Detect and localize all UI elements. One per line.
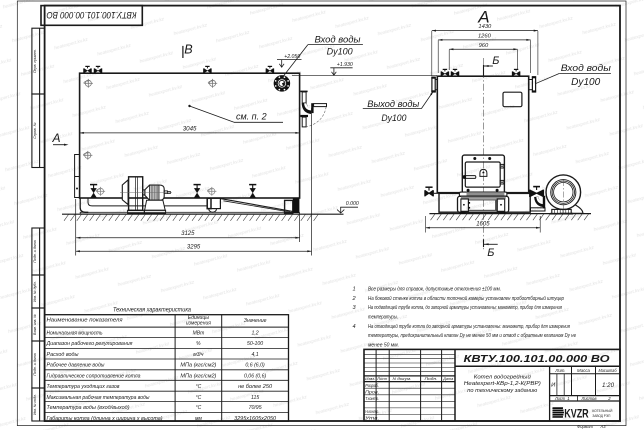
- svg-text:115: 115: [251, 395, 259, 401]
- svg-text:На боковой стенке котла в обла: На боковой стенке котла в области топочн…: [368, 295, 564, 302]
- svg-text:Температура воды (вход/выход): Температура воды (вход/выход): [47, 405, 130, 411]
- svg-text:1605: 1605: [476, 221, 490, 227]
- svg-text:0,6 (6,0): 0,6 (6,0): [245, 363, 265, 369]
- svg-text:по техническому заданию: по техническому заданию: [467, 388, 537, 394]
- svg-text:Подп. и дата: Подп. и дата: [33, 240, 37, 263]
- svg-text:Вход воды: Вход воды: [561, 63, 611, 73]
- svg-text:0,06 (0,6): 0,06 (0,6): [244, 373, 266, 379]
- svg-text:1:20: 1:20: [602, 382, 615, 389]
- svg-text:%: %: [196, 341, 201, 347]
- svg-text:1: 1: [353, 287, 356, 293]
- svg-text:3295: 3295: [187, 245, 201, 251]
- svg-text:Значение: Значение: [244, 318, 267, 324]
- svg-text:Формат: Формат: [577, 424, 593, 429]
- svg-text:Heatexpert-КВр-1,2-К(РВР): Heatexpert-КВр-1,2-К(РВР): [464, 381, 541, 387]
- svg-text:Гидравлическое сопротивление к: Гидравлическое сопротивление котла: [47, 373, 141, 379]
- svg-text:1260: 1260: [478, 34, 492, 40]
- svg-text:°С: °С: [196, 384, 202, 390]
- svg-text:менее 50 мм.: менее 50 мм.: [368, 342, 399, 348]
- svg-text:50-100: 50-100: [247, 341, 263, 347]
- svg-text:960: 960: [479, 43, 489, 49]
- svg-text:Масштаб: Масштаб: [599, 368, 617, 373]
- svg-text:N докум.: N докум.: [393, 376, 412, 381]
- svg-text:Изм.: Изм.: [365, 377, 375, 381]
- svg-text:Температура уходящих газов: Температура уходящих газов: [47, 384, 120, 390]
- svg-text:КОТЕЛЬНЫЙ: КОТЕЛЬНЫЙ: [592, 409, 612, 413]
- svg-text:Наименование показателя: Наименование показателя: [47, 317, 123, 323]
- svg-text:Подп.: Подп.: [425, 376, 438, 381]
- svg-text:4: 4: [353, 324, 356, 330]
- svg-text:3045: 3045: [183, 126, 197, 133]
- svg-text:Т.контр.: Т.контр.: [365, 396, 379, 401]
- svg-text:температуры.: температуры.: [368, 315, 398, 321]
- svg-text:4,1: 4,1: [251, 352, 258, 358]
- svg-text:см. п. 2: см. п. 2: [236, 112, 267, 122]
- svg-text:А: А: [477, 7, 489, 26]
- svg-text:А: А: [52, 131, 61, 145]
- svg-text:Габариты котла (длинна х ширин: Габариты котла (длинна х ширина х высота…: [47, 416, 163, 422]
- svg-text:Вход воды: Вход воды: [315, 35, 361, 45]
- svg-text:Котел водогрейный: Котел водогрейный: [474, 373, 531, 380]
- svg-text:Все размеры для справок, допус: Все размеры для справок, допустимые откл…: [368, 287, 501, 293]
- svg-text:Дата: Дата: [442, 376, 454, 381]
- svg-text:МВт: МВт: [193, 331, 205, 337]
- svg-text:Б: Б: [492, 55, 499, 67]
- svg-text:Перв. примен.: Перв. примен.: [33, 49, 37, 73]
- svg-text:Выход воды: Выход воды: [367, 99, 419, 109]
- svg-text:измерения: измерения: [186, 321, 211, 327]
- svg-text:Подп. и дата: Подп. и дата: [33, 353, 37, 376]
- svg-text:3295х1605х2050: 3295х1605х2050: [234, 416, 276, 422]
- svg-text:°С: °С: [196, 405, 202, 411]
- svg-text:KVZR: KVZR: [564, 406, 589, 420]
- svg-text:Рабочее давление воды: Рабочее давление воды: [47, 363, 105, 369]
- svg-text:МПа (кгс/см2): МПа (кгс/см2): [180, 373, 216, 379]
- svg-text:температуры, предохранительный: температуры, предохранительный клапан Dу…: [368, 332, 576, 339]
- svg-text:На отводящей трубе котла до за: На отводящей трубе котла до запорной арм…: [368, 323, 570, 330]
- svg-text:Взам. инв. №: Взам. инв. №: [33, 314, 37, 335]
- svg-text:Лист: Лист: [376, 377, 387, 381]
- svg-text:не более 250: не более 250: [238, 384, 272, 390]
- svg-text:КВТУ.100.101.00.000 ВО: КВТУ.100.101.00.000 ВО: [46, 10, 137, 21]
- svg-text:ЗАВОД РЭП: ЗАВОД РЭП: [592, 414, 610, 418]
- svg-text:Справ. №: Справ. №: [33, 122, 37, 138]
- svg-text:Б: Б: [487, 247, 494, 259]
- svg-text:+1.930: +1.930: [337, 62, 353, 68]
- svg-text:3125: 3125: [181, 231, 195, 237]
- svg-text:А3: А3: [600, 424, 607, 429]
- svg-text:1,2: 1,2: [251, 331, 258, 337]
- svg-text:+2.050: +2.050: [284, 54, 300, 60]
- svg-text:Пров.: Пров.: [365, 389, 379, 394]
- svg-text:Dy100: Dy100: [327, 47, 353, 57]
- svg-text:0.000: 0.000: [346, 201, 359, 207]
- svg-text:Лит.: Лит.: [554, 368, 565, 373]
- svg-text:Максимальная рабочая температу: Максимальная рабочая температура воды: [47, 395, 150, 401]
- svg-text:КВТУ.100.101.00.000 ВО: КВТУ.100.101.00.000 ВО: [464, 354, 610, 365]
- svg-text:На подводящей трубе котла, д: На подводящей трубе котла, до запорной а…: [368, 304, 562, 311]
- svg-text:Dy100: Dy100: [571, 77, 600, 88]
- svg-text:70/95: 70/95: [249, 405, 262, 411]
- svg-text:Инв. № подл.: Инв. № подл.: [33, 394, 37, 415]
- svg-text:мм: мм: [195, 416, 202, 422]
- svg-text:Расход воды: Расход воды: [47, 352, 79, 358]
- svg-text:°С: °С: [196, 395, 202, 401]
- svg-text:Dy100: Dy100: [381, 113, 406, 123]
- svg-text:Утв.: Утв.: [365, 416, 379, 421]
- svg-text:МПа (кгс/см2): МПа (кгс/см2): [180, 363, 216, 369]
- svg-text:В: В: [184, 43, 192, 57]
- svg-text:м3/ч: м3/ч: [193, 352, 204, 358]
- svg-text:Разраб.: Разраб.: [365, 383, 379, 388]
- svg-text:Диапазон рабочего регулировани: Диапазон рабочего регулирования: [46, 341, 133, 347]
- svg-text:Масса: Масса: [577, 368, 591, 373]
- svg-text:Техническая характеристика: Техническая характеристика: [113, 308, 192, 314]
- svg-text:Номинальная мощность: Номинальная мощность: [47, 331, 103, 337]
- svg-text:Инв. № дубл.: Инв. № дубл.: [33, 281, 37, 302]
- svg-text:Н.контр.: Н.контр.: [365, 409, 379, 414]
